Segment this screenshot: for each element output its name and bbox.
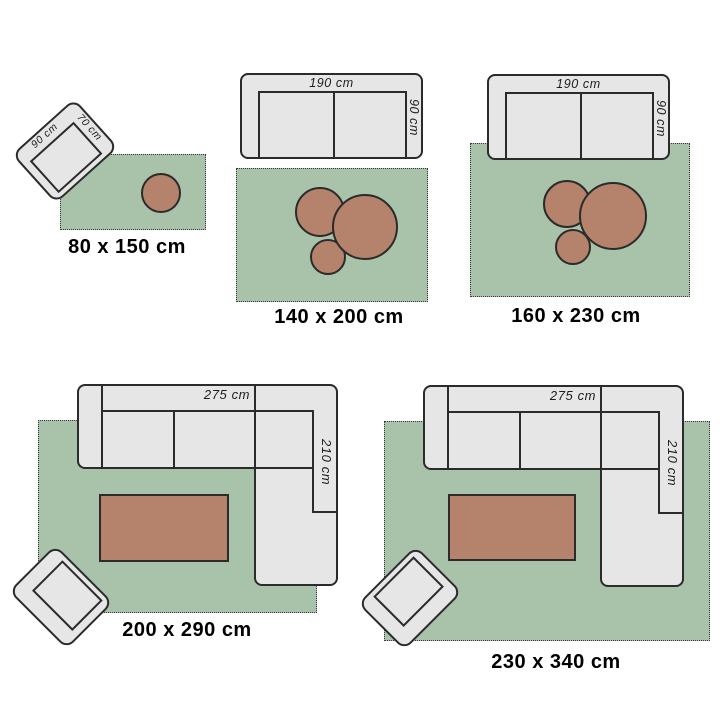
sectional-sofa: 275 cm 210 cm [423,385,684,587]
sofa-two-seat: 190 cm 90 cm [240,73,423,159]
sectional-cushion-line [602,468,658,470]
sectional-sofa: 275 cm 210 cm [77,384,338,586]
sofa-width-label: 190 cm [242,76,421,90]
sofa-depth-label: 90 cm [654,100,668,137]
sectional-depth-label: 210 cm [665,440,680,486]
sectional-width-label: 275 cm [493,388,653,403]
sectional-armrest-line [447,387,449,468]
coffee-table-round-large [579,182,647,250]
sectional-depth-label: 210 cm [319,439,334,485]
coffee-table-round-large [332,194,398,260]
sectional-seat-divider [173,412,175,467]
size-label-140x200: 140 x 200 cm [239,306,439,329]
sofa-seat [258,91,407,157]
size-label-230x340: 230 x 340 cm [456,651,656,674]
sectional-armrest-line [101,386,103,467]
rug-size-guide: 90 cm 70 cm 80 x 150 cm 190 cm 90 cm 140… [0,0,720,720]
sofa-depth-label: 90 cm [407,99,421,136]
sofa-seat [505,92,654,158]
sectional-seat-line [447,411,658,413]
sofa-seat-divider [333,93,335,157]
sofa-two-seat: 190 cm 90 cm [487,74,670,160]
side-table-round [141,173,181,213]
sofa-seat-divider [580,94,582,158]
sectional-seat-divider [519,413,521,468]
sectional-width-label: 275 cm [147,387,307,402]
sectional-seat-line [101,410,312,412]
sofa-width-label: 190 cm [489,77,668,91]
sectional-cushion-line [256,467,312,469]
size-label-160x230: 160 x 230 cm [476,305,676,328]
size-label-200x290: 200 x 290 cm [87,619,287,642]
size-label-80x150: 80 x 150 cm [27,236,227,259]
